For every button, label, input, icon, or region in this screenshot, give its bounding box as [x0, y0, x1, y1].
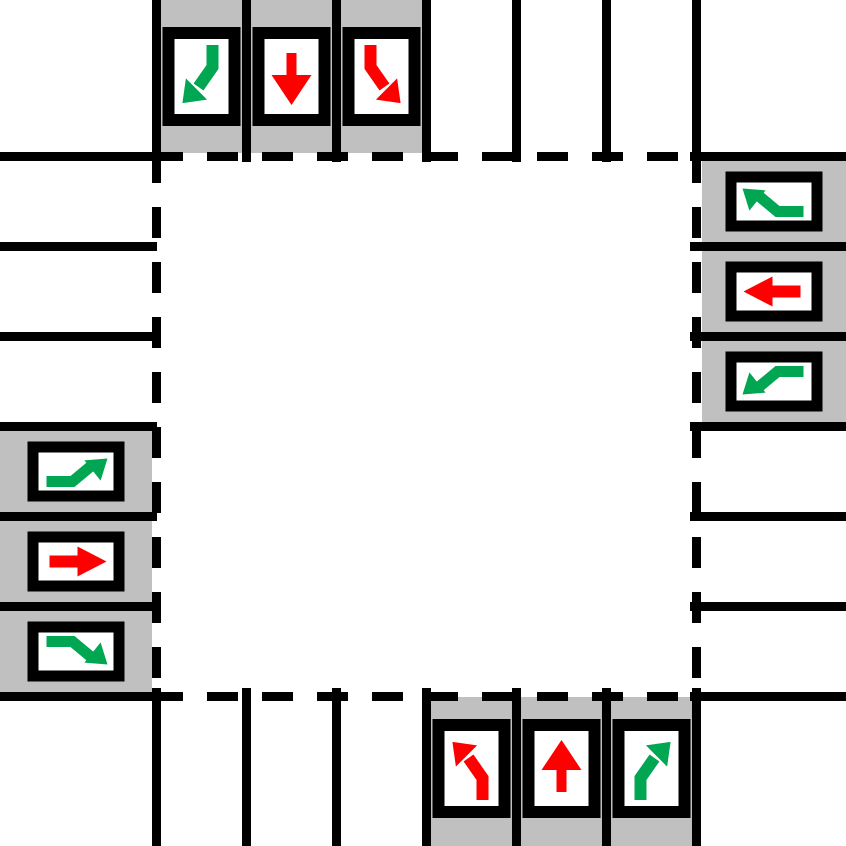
signal-right-lane-2-straight: [726, 262, 823, 322]
signal-right-lane-1-right-turn: [726, 172, 823, 232]
signal-left-lane-2-straight: [28, 532, 125, 592]
signal-bottom-lane-1-left-turn: [433, 719, 511, 818]
signal-right-lane-3-left-turn: [726, 352, 823, 412]
road-markings-canvas: [0, 0, 846, 846]
signal-bottom-lane-3-right-turn: [613, 719, 691, 818]
signal-left-lane-3-right-turn: [28, 622, 125, 682]
intersection-diagram: [0, 0, 846, 846]
signal-top-lane-2-straight: [253, 27, 331, 126]
signal-top-lane-3-left-turn: [343, 27, 421, 126]
signal-top-lane-1-right-turn: [163, 27, 241, 126]
signal-left-lane-1-left-turn: [28, 442, 125, 502]
signal-bottom-lane-2-straight: [523, 719, 601, 818]
